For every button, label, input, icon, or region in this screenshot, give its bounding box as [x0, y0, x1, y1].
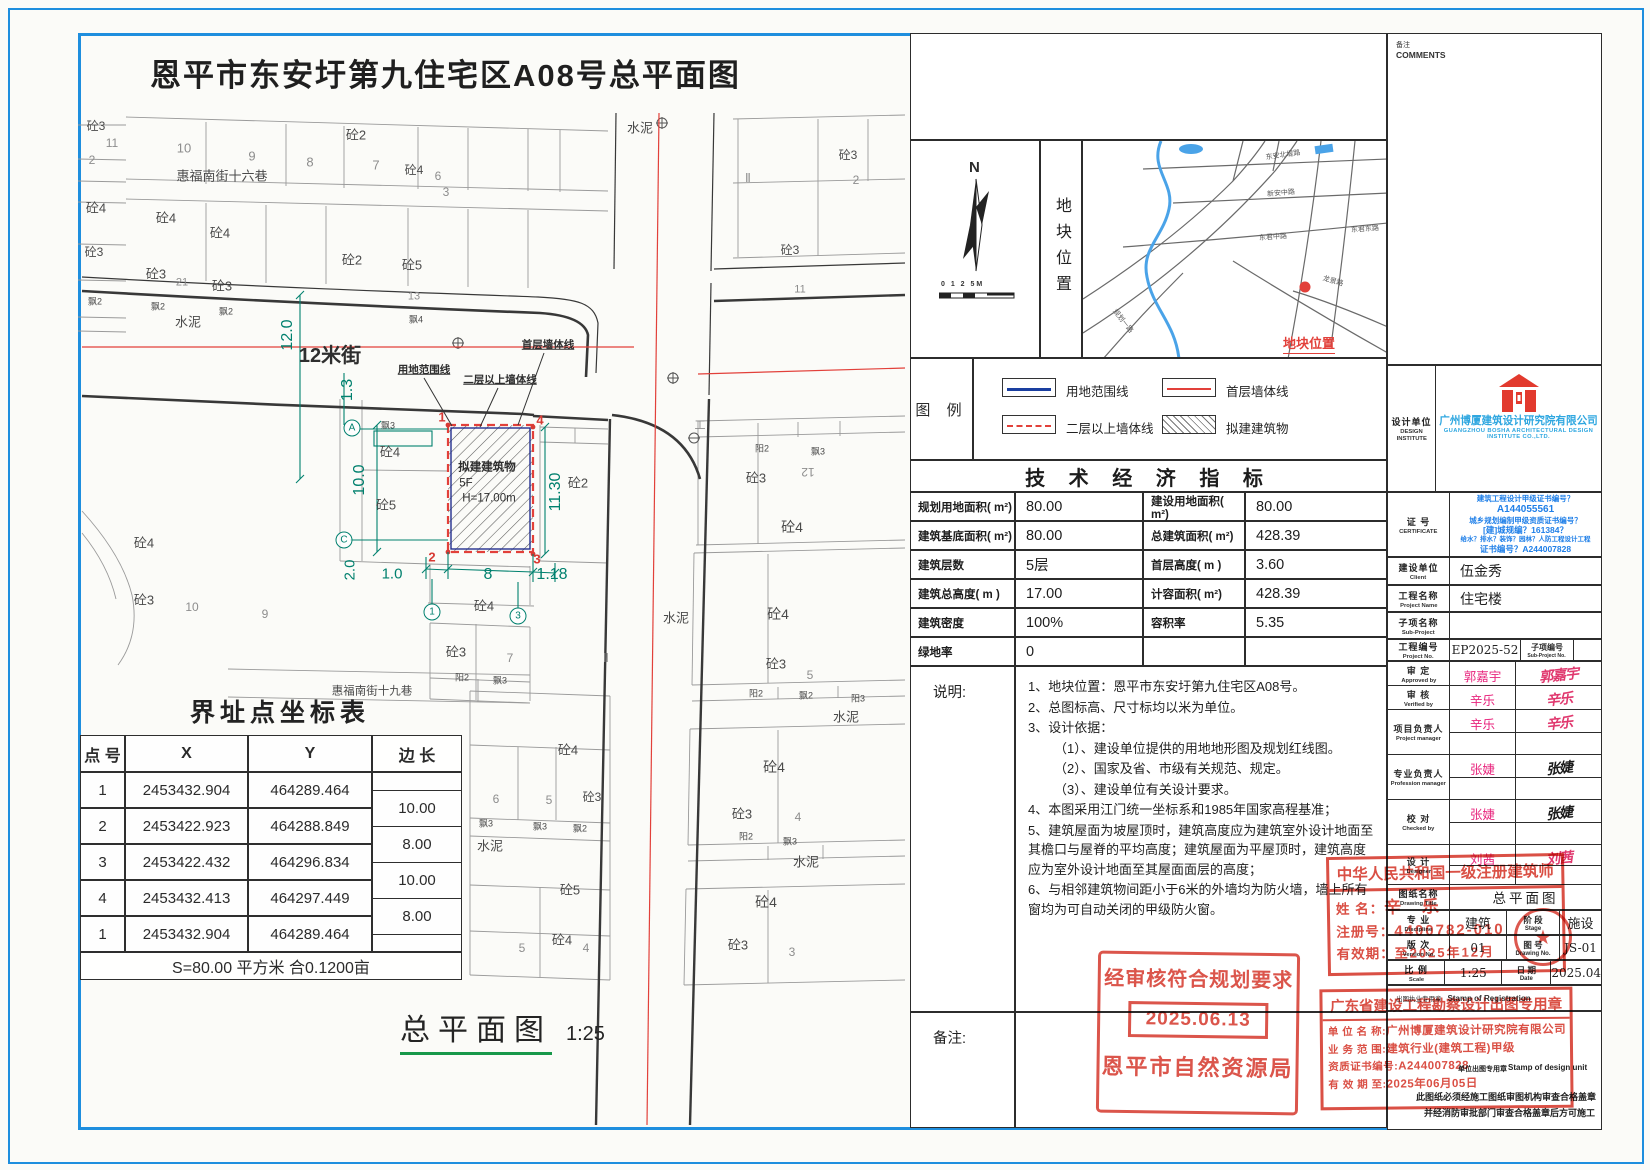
proposed-building — [446, 423, 536, 557]
project-no-en: Project No. — [1403, 653, 1434, 659]
personnel-signature: 张婕 — [1545, 802, 1573, 825]
legend-label: 首层墙体线 — [1226, 381, 1289, 400]
coord-header-x: X — [125, 735, 248, 772]
indicator-label: 建筑基底面积( m²) — [910, 521, 1015, 550]
architect-seal-icon: ★ — [1514, 908, 1572, 966]
indicator-label: 总建筑面积( m²) — [1143, 521, 1245, 550]
design-unit-en2: INSTITUTE — [1396, 435, 1426, 441]
indicator-label: 建筑总高度( m ) — [910, 579, 1015, 608]
architect-reg-no: 4400782-010 — [1394, 921, 1505, 940]
personnel-name: 张婕 — [1470, 759, 1495, 778]
coord-edge-column: 10.008.0010.008.00 — [372, 772, 462, 952]
indicator-label: 容积率 — [1143, 608, 1245, 637]
subproject-zh: 子项名称 — [1398, 616, 1438, 629]
gd-stamp-row: 有 效 期 至:2025年06月05日 — [1323, 1072, 1570, 1093]
personnel-role-en: Approved by — [1401, 677, 1436, 683]
coord-header-edge: 边 长 — [372, 735, 462, 772]
coord-cell: 464297.449 — [248, 880, 372, 916]
personnel-role-zh: 审 定 — [1407, 664, 1431, 677]
coord-cell: 464296.834 — [248, 844, 372, 880]
personnel-name: 郭嘉宇 — [1464, 666, 1502, 685]
personnel-signature: 辛乐 — [1545, 688, 1573, 711]
subproject-no-zh: 子项编号 — [1531, 642, 1563, 653]
coord-table-rows: 12453432.904464289.46422453422.923464288… — [80, 772, 372, 952]
indicator-label: 建设用地面积( m²) — [1143, 492, 1245, 521]
indicator-label: 规划用地面积( m²) — [910, 492, 1015, 521]
certificate-line: [建]城规编？161384？ — [1483, 525, 1568, 536]
note-line: （2）、国家及省、市级有关规范、规定。 — [1028, 759, 1376, 779]
personnel-name: 辛乐 — [1470, 714, 1495, 733]
design-unit-en1: DESIGN — [1400, 428, 1422, 434]
company-logo-icon — [1497, 374, 1541, 412]
north-arrow-icon — [949, 177, 1003, 273]
project-no-zh: 工程编号 — [1398, 640, 1438, 653]
gd-stamp-label: 单 位 名 称: — [1328, 1026, 1386, 1039]
personnel-row: 项目负责人Project manager辛乐辛乐 — [1388, 710, 1601, 755]
design-institute-cell: 设计单位 DESIGN INSTITUTE 广州博厦建筑设计研究院有限公司 GU… — [1387, 365, 1602, 492]
scale-bar-ticks: 0 1 2 5M — [941, 281, 984, 288]
coord-table-header: 点 号 X Y — [80, 735, 372, 772]
gd-stamp-row: 单 位 名 称:广州博厦建筑设计研究院有限公司 — [1323, 1019, 1570, 1040]
coord-edge-value: 10.00 — [373, 791, 461, 827]
certificate-line: 给水？排水？装饰？园林？人防工程设计工程 — [1461, 536, 1591, 544]
compass-cell: N 0 1 2 5M — [910, 140, 1040, 358]
note-line: 2、总图标高、尺寸标均以米为单位。 — [1028, 698, 1376, 718]
coord-table-footer: S=80.00 平方米 合0.1200亩 — [80, 952, 462, 980]
indicator-label — [1143, 637, 1245, 666]
company-name-en2: INSTITUTE CO.,LTD. — [1487, 434, 1550, 440]
callout-leaders — [424, 353, 544, 427]
location-map-drawing — [1083, 141, 1387, 358]
indicator-value: 5层 — [1015, 550, 1143, 579]
certificate-line: 城乡规划编制甲级资质证书编号？ — [1469, 516, 1582, 525]
location-map: 东安北堤路新安中路东君中路东君东路龙景路规划一路 地块位置 — [1082, 140, 1387, 358]
personnel-role-en: Project manager — [1396, 735, 1441, 741]
coord-edge-value: 8.00 — [373, 827, 461, 863]
coord-cell: 2453422.923 — [125, 808, 248, 844]
note-line: 4、本图采用江门统一坐标系和1985年国家高程基准； — [1028, 800, 1376, 820]
indicators-table: 规划用地面积( m²)80.00建设用地面积( m²)80.00建筑基底面积( … — [910, 492, 1387, 666]
north-letter: N — [969, 159, 980, 176]
gd-stamp-value: A244007828 — [1398, 1060, 1469, 1073]
indicator-label: 建筑层数 — [910, 550, 1015, 579]
certificate-en: CERTIFICATE — [1399, 528, 1437, 534]
gd-stamp-value: 2025年06月05日 — [1387, 1078, 1478, 1091]
indicator-value: 17.00 — [1015, 579, 1143, 608]
coord-cell: 1 — [80, 772, 125, 808]
personnel-role-en: Profession manager — [1391, 780, 1446, 786]
certificate-cell: 证 号 CERTIFICATE 建筑工程设计甲级证书编号？A144055561城… — [1387, 492, 1602, 557]
architect-name-label: 姓 名： — [1336, 901, 1385, 917]
indicator-label: 计容面积( m²) — [1143, 579, 1245, 608]
personnel-signature-cell: 郭嘉宇 — [1516, 662, 1601, 685]
coord-cell: 464288.849 — [248, 808, 372, 844]
coord-edge-value: 10.00 — [373, 863, 461, 899]
indicator-value: 0 — [1015, 637, 1143, 666]
indicator-label: 建筑密度 — [910, 608, 1015, 637]
personnel-signature-cell: 辛乐 — [1516, 686, 1601, 709]
personnel-role: 审 定Approved by — [1388, 662, 1450, 685]
project-zh: 工程名称 — [1398, 589, 1438, 602]
note-line: 5、建筑屋面为坡屋顶时，建筑高度应为建筑室外设计地面至其檐口与屋脊的平均高度；建… — [1028, 821, 1376, 880]
subproject-en: Sub-Project — [1402, 629, 1435, 635]
certificate-line: A144055561 — [1497, 504, 1554, 517]
client-cell: 建设单位Client 伍金秀 — [1387, 557, 1602, 585]
note-line: 3、设计依据： — [1028, 718, 1376, 738]
notes-label: 说明: — [910, 666, 1015, 1012]
coord-cell: 2453432.904 — [125, 772, 248, 808]
project-name-cell: 工程名称Project Name 住宅楼 — [1387, 585, 1602, 612]
legend-title: 图 例 — [910, 358, 973, 460]
client-en: Client — [1410, 574, 1426, 580]
survey-symbols — [452, 117, 700, 443]
coord-cell: 464289.464 — [248, 916, 372, 952]
coord-cell: 464289.464 — [248, 772, 372, 808]
coord-header-y: Y — [248, 735, 372, 772]
subproject-cell: 子项名称Sub-Project — [1387, 612, 1602, 639]
subproject-value — [1450, 613, 1601, 638]
personnel-signature: 张婕 — [1545, 757, 1573, 780]
gd-stamp-value: 广州博厦建筑设计研究院有限公司 — [1386, 1024, 1566, 1038]
indicator-value: 5.35 — [1245, 608, 1387, 637]
comments-zh: 备注 — [1396, 40, 1601, 50]
legend-swatch-upperfloor — [1002, 415, 1056, 434]
personnel-row: 专业负责人Profession manager张婕张婕 — [1388, 755, 1601, 800]
company-name-zh: 广州博厦建筑设计研究院有限公司 — [1439, 412, 1597, 428]
coord-cell: 2453432.413 — [125, 880, 248, 916]
project-no-cell: 工程编号Project No. EP2025-52 子项编号Sub-Projec… — [1387, 639, 1602, 661]
approval-stamp: 经审核符合规划要求 2025.06.13 恩平市自然资源局 — [1096, 951, 1300, 1116]
empty-top-cell — [910, 33, 1387, 140]
coord-edge-value: 8.00 — [373, 899, 461, 935]
personnel-name-cell: 郭嘉宇 — [1450, 662, 1516, 685]
legend-label: 拟建建筑物 — [1226, 418, 1289, 437]
architect-valid-date: 至2025年12月 — [1395, 944, 1496, 961]
project-en: Project Name — [1400, 602, 1437, 608]
personnel-row-divider — [1450, 822, 1601, 823]
remark-label: 备注: — [910, 1012, 1015, 1128]
gd-stamp-label: 有 效 期 至: — [1328, 1079, 1386, 1092]
personnel-row-divider — [1450, 777, 1601, 778]
note-line: （1）、建设单位提供的用地地形图及规划红线图。 — [1028, 739, 1376, 759]
certificate-lines: 建筑工程设计甲级证书编号？A144055561城乡规划编制甲级资质证书编号？[建… — [1450, 493, 1601, 556]
architect-valid-label: 有效期： — [1337, 946, 1395, 962]
coord-cell: 2453422.432 — [125, 844, 248, 880]
approval-stamp-agency: 恩平市自然资源局 — [1101, 1049, 1293, 1084]
personnel-role: 专业负责人Profession manager — [1388, 755, 1450, 799]
client-value: 伍金秀 — [1450, 558, 1601, 584]
coord-cell: 1 — [80, 916, 125, 952]
personnel-role: 审 核Verified by — [1388, 686, 1450, 709]
comments-cell: 备注 COMMENTS — [1387, 33, 1602, 365]
personnel-row: 审 核Verified by辛乐辛乐 — [1388, 686, 1601, 710]
note-line: 1、地块位置：恩平市东安圩第九住宅区A08号。 — [1028, 677, 1376, 697]
indicator-label: 首层高度( m ) — [1143, 550, 1245, 579]
architect-reg-label: 注册号： — [1336, 924, 1394, 940]
indicator-value — [1245, 637, 1387, 666]
site-marker-dot — [1300, 282, 1311, 293]
indicator-value: 428.39 — [1245, 521, 1387, 550]
personnel-row-divider — [1450, 732, 1601, 733]
gd-survey-stamp: 广东省建设工程勘察设计出图专用章 单 位 名 称:广州博厦建筑设计研究院有限公司… — [1319, 987, 1573, 1111]
gd-stamp-label: 资质证书编号: — [1328, 1061, 1398, 1074]
personnel-name: 辛乐 — [1470, 690, 1495, 709]
personnel-row: 校 对Checked by张婕张婕 — [1388, 800, 1601, 845]
indicator-value: 80.00 — [1015, 521, 1143, 550]
indicator-value: 3.60 — [1245, 550, 1387, 579]
indicator-value: 80.00 — [1015, 492, 1143, 521]
personnel-name: 张婕 — [1470, 804, 1495, 823]
approval-stamp-title: 经审核符合规划要求 — [1104, 962, 1293, 994]
personnel-role: 校 对Checked by — [1388, 800, 1450, 844]
indicator-value: 428.39 — [1245, 579, 1387, 608]
map-site-label: 地块位置 — [1283, 333, 1335, 354]
gd-stamp-value: 建筑行业(建筑工程)甲级 — [1386, 1042, 1515, 1055]
personnel-row: 审 定Approved by郭嘉宇郭嘉宇 — [1388, 662, 1601, 686]
indicators-title: 技 术 经 济 指 标 — [910, 460, 1387, 492]
date-en: Date — [1520, 976, 1533, 982]
client-zh: 建设单位 — [1398, 561, 1438, 574]
personnel-role-en: Checked by — [1402, 825, 1434, 831]
architect-name: 辛 乐 — [1384, 897, 1447, 917]
certificate-line: 证书编号？A244007828 — [1480, 544, 1571, 555]
scale-bar-icon — [939, 291, 1015, 301]
personnel-name-cell: 辛乐 — [1450, 686, 1516, 709]
coord-header-point: 点 号 — [80, 735, 125, 772]
architect-stamp-title: 中华人民共和国一级注册建筑师 — [1329, 856, 1562, 892]
note-line: 6、与相邻建筑物间距小于6米的外墙均为防火墙，墙上所有窗均为可自动关闭的甲级防火… — [1028, 880, 1376, 919]
personnel-role-zh: 校 对 — [1407, 812, 1431, 825]
indicator-value: 80.00 — [1245, 492, 1387, 521]
personnel-role-zh: 审 核 — [1407, 688, 1431, 701]
coord-edge-spacer — [373, 773, 461, 791]
legend-content: 用地范围线 首层墙体线 二层以上墙体线 拟建建筑物 — [973, 358, 1387, 460]
project-value: 住宅楼 — [1450, 586, 1601, 611]
note-line: （3）、建设单位有关设计要求。 — [1028, 780, 1376, 800]
legend-swatch-firstfloor — [1162, 378, 1216, 397]
project-no-value: EP2025-52 — [1450, 640, 1520, 660]
gd-stamp-label: 业 务 范 围: — [1328, 1044, 1386, 1057]
legend-swatch-boundary — [1002, 378, 1056, 397]
personnel-role-zh: 项目负责人 — [1393, 722, 1443, 735]
approval-stamp-date: 2025.06.13 — [1128, 1001, 1268, 1039]
certificate-line: 建筑工程设计甲级证书编号？ — [1477, 494, 1575, 503]
legend-label: 二层以上墙体线 — [1066, 418, 1154, 437]
personnel-role-zh: 专业负责人 — [1393, 767, 1443, 780]
legend-label: 用地范围线 — [1066, 381, 1129, 400]
gd-stamp-title: 广东省建设工程勘察设计出图专用章 — [1322, 990, 1569, 1022]
coord-cell: 3 — [80, 844, 125, 880]
scale-en: Scale — [1409, 976, 1424, 982]
indicator-label: 绿地率 — [910, 637, 1015, 666]
certificate-zh: 证 号 — [1407, 515, 1431, 528]
indicator-value: 100% — [1015, 608, 1143, 637]
subproject-no-en: Sub-Project No. — [1528, 653, 1566, 658]
gd-stamp-rows: 单 位 名 称:广州博厦建筑设计研究院有限公司业 务 范 围:建筑行业(建筑工程… — [1323, 1019, 1571, 1093]
coord-cell: 4 — [80, 880, 125, 916]
location-side-label: 地块位置 — [1040, 140, 1082, 358]
personnel-role-en: Verified by — [1404, 701, 1433, 707]
drawing-sheet: 砼31121098砼27砼463水泥惠福南街十六巷砼4砼4砼4砼2砼5砼3砼32… — [0, 0, 1650, 1170]
coord-cell: 2453432.904 — [125, 916, 248, 952]
legend-swatch-proposed — [1162, 415, 1216, 434]
personnel-signature: 郭嘉宇 — [1538, 663, 1579, 687]
personnel-rows: 审 定Approved by郭嘉宇郭嘉宇审 核Verified by辛乐辛乐项目… — [1387, 661, 1602, 886]
comments-en: COMMENTS — [1396, 50, 1601, 60]
design-unit-zh: 设计单位 — [1391, 415, 1431, 428]
personnel-role: 项目负责人Project manager — [1388, 710, 1450, 754]
coord-cell: 2 — [80, 808, 125, 844]
personnel-signature: 辛乐 — [1545, 712, 1573, 735]
